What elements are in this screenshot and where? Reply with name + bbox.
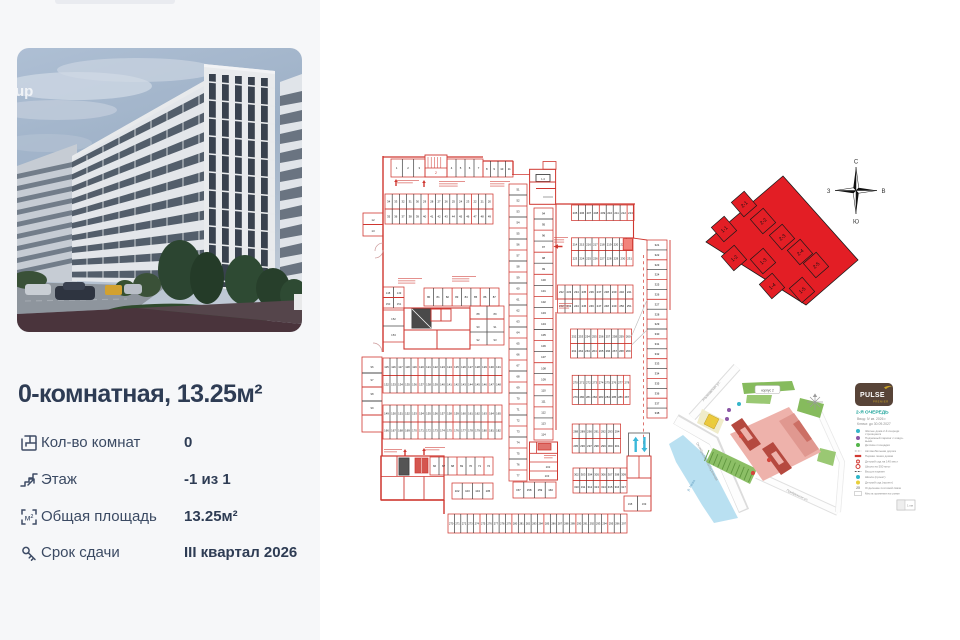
svg-text:102: 102 [455, 489, 460, 493]
svg-text:309: 309 [621, 472, 626, 476]
svg-text:160: 160 [461, 412, 466, 416]
svg-text:100: 100 [541, 278, 546, 282]
svg-text:293: 293 [596, 522, 601, 526]
svg-text:172: 172 [426, 429, 431, 433]
svg-text:106: 106 [541, 344, 546, 348]
svg-text:289: 289 [580, 429, 585, 433]
svg-text:Детский сад на 140 мест: Детский сад на 140 мест [865, 460, 899, 464]
svg-text:35: 35 [387, 215, 391, 219]
svg-text:252: 252 [572, 334, 577, 338]
svg-text:29: 29 [423, 200, 427, 204]
svg-text:231: 231 [627, 256, 632, 260]
svg-text:99: 99 [370, 406, 374, 410]
svg-text:241: 241 [627, 290, 632, 294]
svg-text:232: 232 [559, 290, 564, 294]
svg-text:271: 271 [455, 522, 460, 526]
svg-text:247: 247 [597, 304, 602, 308]
svg-text:152: 152 [405, 412, 410, 416]
svg-text:305: 305 [594, 472, 599, 476]
svg-text:208: 208 [593, 211, 598, 215]
svg-text:270: 270 [449, 522, 454, 526]
svg-text:164: 164 [489, 412, 494, 416]
svg-text:136: 136 [412, 382, 417, 386]
svg-text:273: 273 [592, 381, 597, 385]
svg-text:316: 316 [615, 485, 620, 489]
svg-text:Места хранения на схеме: Места хранения на схеме [865, 492, 900, 496]
svg-text:120: 120 [419, 365, 424, 369]
svg-text:132: 132 [384, 382, 389, 386]
svg-text:274: 274 [475, 522, 480, 526]
svg-text:97: 97 [370, 378, 374, 382]
svg-text:311: 311 [581, 485, 586, 489]
svg-text:147: 147 [489, 382, 494, 386]
svg-text:109: 109 [541, 377, 546, 381]
svg-text:155: 155 [426, 412, 431, 416]
svg-text:корпус 2: корпус 2 [761, 388, 774, 392]
svg-text:36: 36 [394, 215, 398, 219]
svg-text:215: 215 [579, 242, 584, 246]
svg-text:33: 33 [394, 200, 398, 204]
svg-text:129: 129 [482, 365, 487, 369]
svg-text:255: 255 [592, 334, 597, 338]
svg-text:143: 143 [461, 382, 466, 386]
svg-text:137: 137 [419, 382, 424, 386]
svg-text:281: 281 [586, 395, 591, 399]
svg-text:178: 178 [468, 429, 473, 433]
svg-text:285: 285 [545, 522, 550, 526]
svg-text:205: 205 [573, 211, 578, 215]
svg-text:156: 156 [433, 412, 438, 416]
svg-text:46: 46 [466, 215, 470, 219]
svg-text:295: 295 [609, 522, 614, 526]
svg-text:217: 217 [593, 242, 598, 246]
svg-text:295: 295 [573, 444, 578, 448]
svg-text:306: 306 [601, 472, 606, 476]
svg-text:Первая линия домов: Первая линия домов [865, 454, 894, 458]
svg-text:239: 239 [612, 290, 617, 294]
svg-text:333: 333 [655, 362, 660, 366]
svg-text:297: 297 [622, 522, 627, 526]
svg-text:171: 171 [419, 429, 424, 433]
svg-text:94: 94 [542, 212, 546, 216]
svg-text:261: 261 [572, 349, 577, 353]
svg-text:121: 121 [426, 365, 431, 369]
svg-text:167: 167 [391, 429, 396, 433]
svg-text:286: 286 [551, 522, 556, 526]
svg-text:291: 291 [583, 522, 588, 526]
svg-text:92: 92 [476, 338, 480, 342]
svg-text:4: 4 [451, 166, 453, 170]
svg-text:112: 112 [541, 411, 546, 415]
svg-text:98: 98 [542, 256, 546, 260]
svg-text:298: 298 [594, 444, 599, 448]
svg-text:111: 111 [541, 399, 546, 403]
svg-text:265: 265 [599, 349, 604, 353]
svg-text:128: 128 [475, 365, 480, 369]
svg-text:Отделение почтовой связи: Отделение почтовой связи [865, 486, 901, 490]
svg-text:103: 103 [541, 311, 546, 315]
svg-text:325: 325 [655, 283, 660, 287]
svg-text:82: 82 [446, 295, 450, 299]
svg-text:282: 282 [592, 395, 597, 399]
svg-text:328: 328 [655, 312, 660, 316]
svg-text:274: 274 [599, 381, 604, 385]
svg-text:275: 275 [481, 522, 486, 526]
svg-text:С: С [854, 160, 859, 166]
svg-text:283: 283 [599, 395, 604, 399]
svg-text:272: 272 [586, 381, 591, 385]
svg-text:335: 335 [655, 382, 660, 386]
svg-text:70: 70 [469, 464, 473, 468]
svg-text:21: 21 [481, 200, 485, 204]
svg-text:303: 303 [581, 472, 586, 476]
svg-text:337: 337 [655, 401, 660, 405]
svg-text:214: 214 [573, 242, 578, 246]
svg-text:70: 70 [516, 397, 520, 401]
svg-text:Ключи: до 30.09.2027: Ключи: до 30.09.2027 [857, 422, 891, 426]
svg-text:267: 267 [612, 349, 617, 353]
svg-text:292: 292 [590, 522, 595, 526]
svg-text:304: 304 [588, 472, 593, 476]
svg-text:331: 331 [655, 342, 660, 346]
svg-text:182: 182 [496, 429, 501, 433]
svg-text:96: 96 [542, 234, 546, 238]
svg-text:293: 293 [608, 429, 613, 433]
svg-text:323: 323 [655, 263, 660, 267]
svg-text:54: 54 [516, 221, 520, 225]
svg-text:75: 75 [516, 452, 520, 456]
svg-text:206: 206 [580, 211, 585, 215]
svg-text:296: 296 [615, 522, 620, 526]
svg-text:226: 226 [593, 256, 598, 260]
svg-text:199: 199 [642, 502, 647, 506]
svg-text:270: 270 [573, 381, 578, 385]
svg-text:163: 163 [482, 412, 487, 416]
svg-text:159: 159 [454, 412, 459, 416]
svg-text:330: 330 [655, 332, 660, 336]
svg-text:202: 202 [546, 465, 551, 469]
svg-text:42: 42 [437, 215, 441, 219]
svg-text:277: 277 [618, 381, 623, 385]
svg-text:225: 225 [586, 256, 591, 260]
svg-text:154: 154 [419, 412, 424, 416]
svg-text:246: 246 [589, 304, 594, 308]
svg-text:Ю: Ю [853, 220, 859, 226]
svg-text:101: 101 [541, 289, 546, 293]
svg-text:326: 326 [655, 293, 660, 297]
svg-text:68: 68 [451, 464, 455, 468]
svg-text:266: 266 [606, 349, 611, 353]
svg-text:218: 218 [600, 242, 605, 246]
svg-text:148: 148 [386, 291, 391, 295]
svg-text:332: 332 [655, 352, 660, 356]
svg-text:73: 73 [516, 430, 520, 434]
svg-text:9: 9 [493, 167, 495, 171]
svg-text:277: 277 [494, 522, 499, 526]
svg-text:25: 25 [452, 200, 456, 204]
svg-text:2: 2 [435, 171, 437, 175]
svg-text:30: 30 [416, 200, 420, 204]
svg-text:234: 234 [574, 290, 579, 294]
svg-text:Школа на 550 мест: Школа на 550 мест [865, 465, 891, 469]
svg-text:Детские площадки: Детские площадки [865, 443, 890, 447]
svg-text:20: 20 [488, 200, 492, 204]
svg-text:282: 282 [526, 522, 531, 526]
svg-text:1: 1 [396, 166, 398, 170]
svg-text:269: 269 [626, 349, 631, 353]
svg-text:227: 227 [600, 256, 605, 260]
svg-text:11: 11 [508, 167, 511, 171]
svg-text:76: 76 [516, 463, 520, 467]
svg-text:53: 53 [516, 210, 520, 214]
svg-text:314: 314 [601, 485, 606, 489]
svg-text:91: 91 [493, 325, 497, 329]
svg-text:80: 80 [427, 295, 431, 299]
svg-text:334: 334 [655, 372, 660, 376]
svg-text:284: 284 [539, 522, 544, 526]
svg-text:175: 175 [447, 429, 452, 433]
svg-text:308: 308 [615, 472, 620, 476]
svg-text:96: 96 [370, 365, 374, 369]
svg-text:179: 179 [475, 429, 480, 433]
svg-text:118: 118 [405, 365, 410, 369]
svg-text:279: 279 [507, 522, 512, 526]
svg-text:173: 173 [433, 429, 438, 433]
svg-text:12: 12 [371, 218, 375, 222]
svg-text:286: 286 [618, 395, 623, 399]
svg-text:278: 278 [624, 381, 629, 385]
svg-text:51: 51 [516, 188, 520, 192]
svg-text:68: 68 [516, 375, 520, 379]
svg-text:279: 279 [573, 395, 578, 399]
svg-text:149: 149 [397, 291, 402, 295]
svg-text:61: 61 [516, 298, 520, 302]
svg-text:32: 32 [401, 200, 405, 204]
svg-text:44: 44 [452, 215, 456, 219]
svg-text:210: 210 [607, 211, 612, 215]
svg-text:228: 228 [607, 256, 612, 260]
svg-text:39: 39 [416, 215, 420, 219]
svg-text:110: 110 [541, 388, 546, 392]
svg-text:123: 123 [440, 365, 445, 369]
svg-text:31: 31 [409, 200, 413, 204]
svg-text:177: 177 [461, 429, 466, 433]
svg-text:288: 288 [573, 429, 578, 433]
svg-text:77: 77 [516, 474, 520, 478]
svg-text:253: 253 [578, 334, 583, 338]
svg-text:159: 159 [538, 488, 543, 492]
svg-text:122: 122 [433, 365, 438, 369]
svg-text:258: 258 [612, 334, 617, 338]
svg-text:38: 38 [409, 215, 413, 219]
svg-text:84: 84 [465, 295, 469, 299]
svg-text:72: 72 [487, 464, 491, 468]
svg-text:157: 157 [516, 488, 521, 492]
svg-text:104: 104 [475, 489, 480, 493]
svg-text:98: 98 [370, 392, 374, 396]
svg-text:289: 289 [571, 522, 576, 526]
svg-text:26: 26 [445, 200, 449, 204]
svg-text:133: 133 [391, 382, 396, 386]
svg-text:149: 149 [384, 412, 389, 416]
svg-text:271: 271 [579, 381, 584, 385]
svg-text:8: 8 [486, 167, 488, 171]
svg-text:300: 300 [608, 444, 613, 448]
svg-text:66: 66 [433, 464, 437, 468]
svg-text:299: 299 [601, 444, 606, 448]
svg-text:245: 245 [582, 304, 587, 308]
svg-text:87: 87 [493, 295, 497, 299]
svg-text:207: 207 [587, 211, 592, 215]
svg-text:22: 22 [473, 200, 477, 204]
svg-text:90: 90 [476, 325, 480, 329]
svg-text:71: 71 [516, 408, 520, 412]
svg-text:174: 174 [440, 429, 445, 433]
svg-text:В: В [881, 189, 885, 195]
svg-text:165: 165 [496, 412, 501, 416]
svg-text:81: 81 [437, 295, 441, 299]
svg-text:302: 302 [574, 472, 579, 476]
svg-text:230: 230 [620, 256, 625, 260]
svg-text:176: 176 [454, 429, 459, 433]
svg-text:240: 240 [619, 290, 624, 294]
svg-text:105: 105 [486, 489, 491, 493]
svg-text:124: 124 [447, 365, 452, 369]
svg-text:23: 23 [466, 200, 470, 204]
svg-text:181: 181 [489, 429, 494, 433]
svg-text:102: 102 [541, 300, 546, 304]
svg-text:263: 263 [585, 349, 590, 353]
svg-text:93: 93 [493, 338, 497, 342]
svg-text:67: 67 [516, 364, 520, 368]
svg-text:67: 67 [442, 464, 446, 468]
svg-text:56: 56 [516, 243, 520, 247]
svg-text:10: 10 [500, 167, 504, 171]
svg-text:324: 324 [655, 273, 660, 277]
svg-text:287: 287 [558, 522, 563, 526]
svg-text:28: 28 [430, 200, 434, 204]
svg-text:41: 41 [430, 215, 434, 219]
svg-text:125: 125 [454, 365, 459, 369]
svg-text:254: 254 [585, 334, 590, 338]
svg-text:336: 336 [655, 391, 660, 395]
svg-text:301: 301 [615, 444, 620, 448]
svg-text:310: 310 [574, 485, 579, 489]
svg-text:65: 65 [516, 342, 520, 346]
svg-text:7: 7 [478, 166, 480, 170]
svg-text:166: 166 [384, 429, 389, 433]
svg-text:273: 273 [468, 522, 473, 526]
svg-text:329: 329 [655, 322, 660, 326]
svg-text:150: 150 [391, 412, 396, 416]
svg-text:313: 313 [594, 485, 599, 489]
svg-text:144: 144 [468, 382, 473, 386]
svg-text:69: 69 [516, 386, 520, 390]
svg-text:1 км: 1 км [907, 504, 913, 508]
svg-text:213: 213 [628, 211, 633, 215]
svg-text:212: 212 [621, 211, 626, 215]
svg-text:139: 139 [433, 382, 438, 386]
svg-text:64: 64 [516, 331, 520, 335]
svg-text:103: 103 [465, 489, 470, 493]
svg-text:317: 317 [621, 485, 626, 489]
svg-text:142: 142 [454, 382, 459, 386]
svg-text:284: 284 [605, 395, 610, 399]
svg-text:268: 268 [619, 349, 624, 353]
svg-text:162: 162 [475, 412, 480, 416]
svg-text:157: 157 [440, 412, 445, 416]
svg-text:72: 72 [516, 419, 520, 423]
svg-text:236: 236 [589, 290, 594, 294]
svg-text:127: 127 [468, 365, 473, 369]
svg-text:272: 272 [462, 522, 467, 526]
svg-text:Школа (проект): Школа (проект) [865, 475, 886, 479]
svg-text:40: 40 [423, 215, 427, 219]
svg-text:116: 116 [391, 365, 396, 369]
svg-text:288: 288 [564, 522, 569, 526]
svg-text:Автомобильная дорога: Автомобильная дорога [865, 449, 896, 453]
svg-text:158: 158 [447, 412, 452, 416]
svg-text:89: 89 [493, 312, 497, 316]
svg-text:49: 49 [488, 215, 492, 219]
svg-text:45: 45 [459, 215, 463, 219]
svg-text:229: 229 [614, 256, 619, 260]
svg-text:251: 251 [627, 304, 632, 308]
svg-text:169: 169 [405, 429, 410, 433]
svg-text:52: 52 [516, 199, 520, 203]
svg-text:74: 74 [516, 441, 520, 445]
svg-text:69: 69 [460, 464, 464, 468]
svg-text:140: 140 [440, 382, 445, 386]
svg-text:141: 141 [447, 382, 452, 386]
svg-text:151: 151 [398, 412, 403, 416]
svg-text:294: 294 [615, 429, 620, 433]
svg-text:126: 126 [461, 365, 466, 369]
svg-text:312: 312 [588, 485, 593, 489]
svg-text:152: 152 [391, 317, 396, 321]
svg-text:219: 219 [607, 242, 612, 246]
svg-text:3: 3 [419, 166, 421, 170]
svg-text:180: 180 [482, 429, 487, 433]
svg-text:60: 60 [516, 287, 520, 291]
svg-text:55: 55 [516, 232, 520, 236]
svg-text:З: З [827, 189, 831, 195]
svg-text:257: 257 [606, 334, 611, 338]
svg-text:47: 47 [473, 215, 477, 219]
svg-text:280: 280 [579, 395, 584, 399]
svg-text:223: 223 [573, 256, 578, 260]
svg-text:63: 63 [516, 320, 520, 324]
svg-text:62: 62 [516, 309, 520, 313]
svg-text:209: 209 [600, 211, 605, 215]
svg-text:276: 276 [612, 381, 617, 385]
svg-text:168: 168 [398, 429, 403, 433]
svg-text:135: 135 [405, 382, 410, 386]
svg-text:114: 114 [541, 433, 546, 437]
svg-text:83: 83 [455, 295, 459, 299]
svg-text:PULSE: PULSE [860, 392, 885, 399]
svg-text:34: 34 [387, 200, 391, 204]
svg-text:158: 158 [527, 488, 532, 492]
svg-text:259: 259 [619, 334, 624, 338]
svg-text:48: 48 [481, 215, 485, 219]
svg-text:145: 145 [475, 382, 480, 386]
svg-text:Детский сад (проект): Детский сад (проект) [865, 481, 893, 485]
svg-text:6: 6 [469, 166, 471, 170]
svg-text:97: 97 [542, 245, 546, 249]
svg-text:262: 262 [578, 349, 583, 353]
svg-text:Вход в паркинг: Вход в паркинг [865, 470, 885, 474]
